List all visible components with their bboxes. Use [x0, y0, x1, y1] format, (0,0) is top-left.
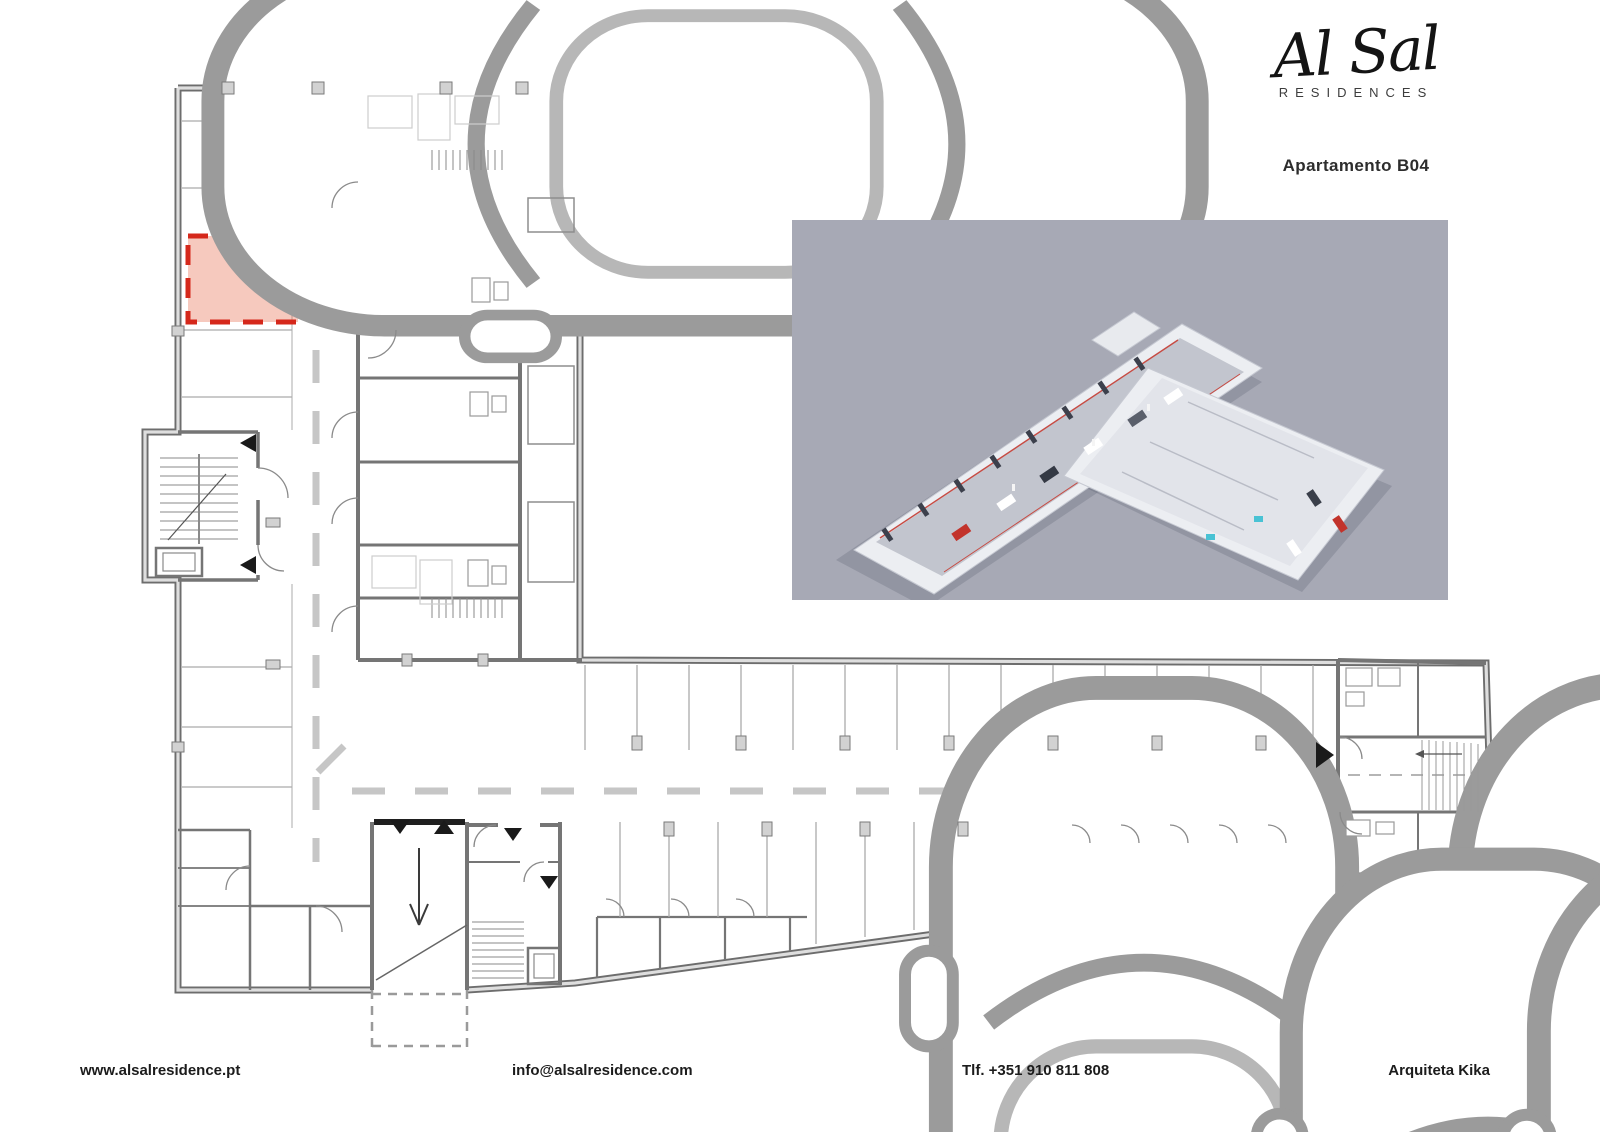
- door-arrow-icon: [240, 556, 256, 574]
- render-3d-image: [792, 220, 1448, 600]
- stair-tower-left: [156, 454, 238, 576]
- footer-architect: Arquiteta Kika: [1388, 1062, 1490, 1079]
- brand-logo: Al Sal RESIDENCES: [1258, 22, 1454, 100]
- render-building: [854, 312, 1384, 594]
- footer-website-link[interactable]: www.alsalresidence.pt: [80, 1062, 240, 1079]
- footer-phone: Tlf. +351 910 811 808: [962, 1062, 1109, 1079]
- door-arrow-icon: [504, 828, 522, 841]
- brochure-page: Al Sal RESIDENCES Apartamento B04 www.al…: [0, 0, 1600, 1132]
- stair-core-bottom: [467, 822, 560, 985]
- vehicle-ramp: [372, 822, 467, 1048]
- apartment-title: Apartamento B04: [1258, 156, 1454, 176]
- brand-logo-script: Al Sal: [1256, 17, 1455, 90]
- door-arrow-icon: [390, 820, 410, 834]
- door-arrow-icon: [240, 434, 256, 452]
- footer-email-link[interactable]: info@alsalresidence.com: [512, 1062, 693, 1079]
- ramp-down-arrow: [410, 848, 428, 925]
- door-arrow-icon: [540, 876, 558, 889]
- render-3d-panel: [792, 220, 1448, 600]
